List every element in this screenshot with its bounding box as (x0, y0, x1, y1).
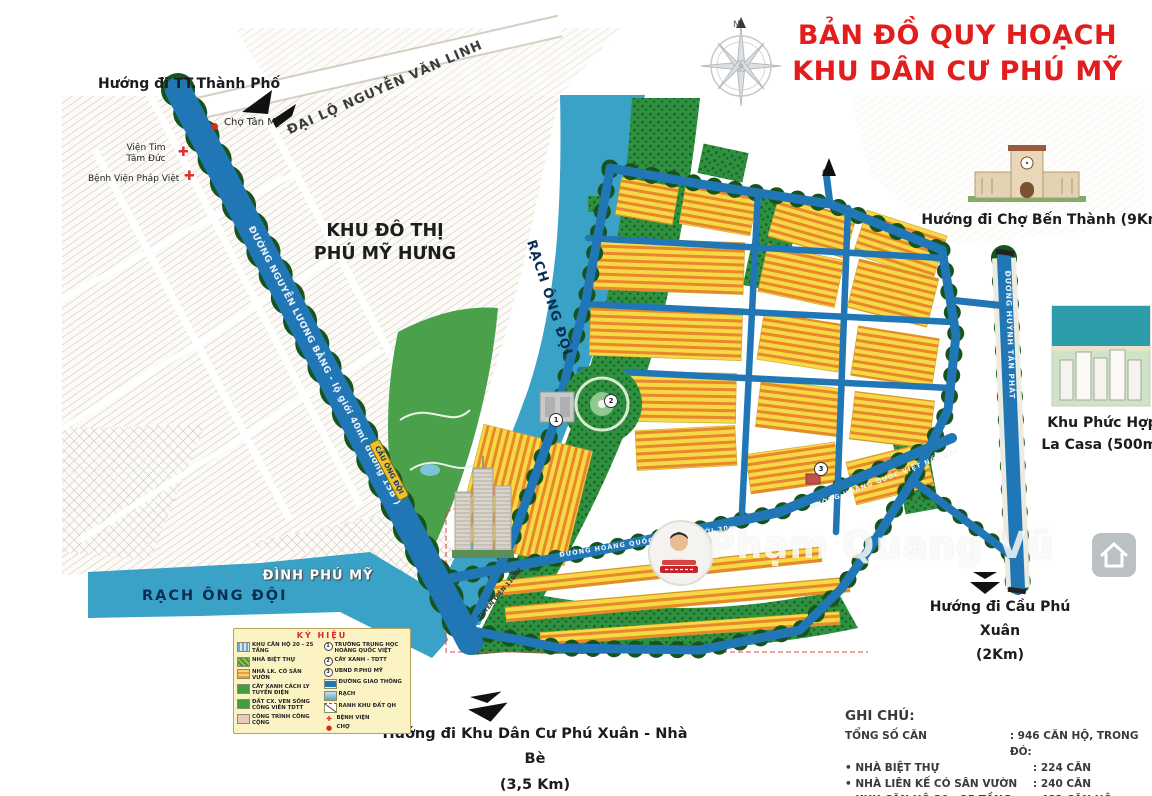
legend-item: ĐẤT CX. VEN SÔNG CÔNG VIÊN TDTT (237, 699, 321, 713)
dinh-phu-my-label: ĐÌNH PHÚ MỸ (263, 569, 374, 584)
road-swatch (324, 679, 337, 689)
legend-item: ĐƯỜNG GIAO THÔNG (324, 679, 408, 690)
phu-my-hung-label: KHU ĐÔ THỊ PHÚ MỸ HƯNG (310, 220, 460, 266)
title-line-1: BẢN ĐỒ QUY HOẠCH (775, 18, 1140, 54)
legend-item: CÔNG TRÌNH CÔNG CỘNG (237, 714, 321, 728)
legend-item: NHÀ LK. CÓ SÂN VƯỜN (237, 669, 321, 683)
legend-left-column: KHU CĂN HỘ 20 - 25 TẦNG NHÀ BIỆT THỰ NHÀ… (237, 640, 321, 734)
notes-row: • NHÀ BIỆT THỰ: 224 CĂN (845, 760, 1145, 776)
phu-xuan-arrow (968, 570, 1002, 594)
map-marker-3: 3 (814, 462, 828, 476)
page-title: BẢN ĐỒ QUY HOẠCH KHU DÂN CƯ PHÚ MỸ (775, 18, 1140, 90)
watermark-name: Phạm Quang Vũ (708, 524, 1054, 567)
home-icon (1092, 533, 1136, 577)
planning-map: N BẢN ĐỒ QUY HOẠCH KHU DÂN CƯ PHÚ MỸ Hướ… (0, 0, 1152, 796)
legend-item: ●CHỢ (324, 724, 408, 732)
market-dot-icon: ● (324, 724, 335, 732)
legend-item: RANH KHU ĐẤT QH (324, 703, 408, 714)
vien-tim-label: Viện Tim Tâm Đức (120, 143, 172, 165)
legend-item: RẠCH (324, 691, 408, 702)
legend-right-column: 1TRƯỜNG TRUNG HỌC HOÀNG QUỐC VIỆT 2CÂY X… (324, 640, 408, 734)
la-casa-photo (1052, 306, 1150, 406)
title-line-2: KHU DÂN CƯ PHÚ MỸ (775, 54, 1140, 90)
notes-title: GHI CHÚ: (845, 708, 1145, 724)
cho-tan-my-label: Chợ Tân Mỹ (224, 117, 282, 128)
legend-item: ✚BỆNH VIỆN (324, 715, 408, 723)
green-swatch (237, 684, 250, 694)
agent-avatar (648, 520, 714, 586)
map-marker-1: 1 (549, 413, 563, 427)
rowhouse-swatch (237, 669, 250, 679)
hospital-cross-icon: ✚ (324, 715, 335, 723)
water-swatch (324, 691, 337, 701)
direction-nha-be-label: Hướng đi Khu Dân Cư Phú Xuân - Nhà Bè (3… (380, 722, 690, 796)
apartment-swatch (237, 642, 250, 652)
hospital-cross-icon: ✚ (178, 148, 189, 158)
map-marker-2: 2 (604, 394, 618, 408)
legend-item: 3UBND P.PHÚ MỸ (324, 668, 408, 678)
direction-ben-thanh-label: Hướng đi Chợ Bến Thành (9Km) (905, 212, 1152, 228)
cho-tan-my-marker (211, 123, 218, 130)
legend-item: 1TRƯỜNG TRUNG HỌC HOÀNG QUỐC VIỆT (324, 642, 408, 656)
villa-swatch (237, 657, 250, 667)
green-swatch (237, 699, 250, 709)
home-button[interactable] (1092, 533, 1136, 577)
notes-row: • KHU CĂN HỘ 20 - 25 TẦNG: 482 CĂN HỘ (845, 792, 1145, 796)
notes-row: • NHÀ LIÊN KẾ CÓ SÂN VƯỜN: 240 CĂN (845, 776, 1145, 792)
rach-ong-doi-canal-label: RẠCH ÔNG ĐỘI (142, 588, 288, 604)
legend-box: KÝ HIỆU KHU CĂN HỘ 20 - 25 TẦNG NHÀ BIỆT… (233, 628, 411, 734)
legend-item: 2CÂY XANH - TDTT (324, 657, 408, 667)
direction-phu-xuan-label: Hướng đi Cầu Phú Xuân (2Km) (910, 596, 1090, 667)
benh-vien-phap-viet-label: Bệnh Viện Pháp Việt (88, 174, 179, 184)
notes-section: GHI CHÚ: TỔNG SỐ CĂN: 946 CĂN HỘ, TRONG … (845, 708, 1145, 796)
north-road-arrow (822, 158, 836, 176)
legend-item: NHÀ BIỆT THỰ (237, 657, 321, 668)
boundary-swatch (324, 703, 337, 713)
map-canvas (0, 0, 1152, 796)
public-works-swatch (237, 714, 250, 724)
legend-title: KÝ HIỆU (237, 631, 407, 640)
hospital-cross-icon: ✚ (184, 172, 195, 182)
legend-item: KHU CĂN HỘ 20 - 25 TẦNG (237, 642, 321, 656)
compass-north-letter: N (733, 20, 740, 30)
notes-row: TỔNG SỐ CĂN: 946 CĂN HỘ, TRONG ĐÓ: (845, 728, 1145, 760)
la-casa-label: Khu Phức Hợp La Casa (500m) (1040, 412, 1152, 457)
legend-item: CÂY XANH CÁCH LY TUYẾN ĐIỆN (237, 684, 321, 698)
